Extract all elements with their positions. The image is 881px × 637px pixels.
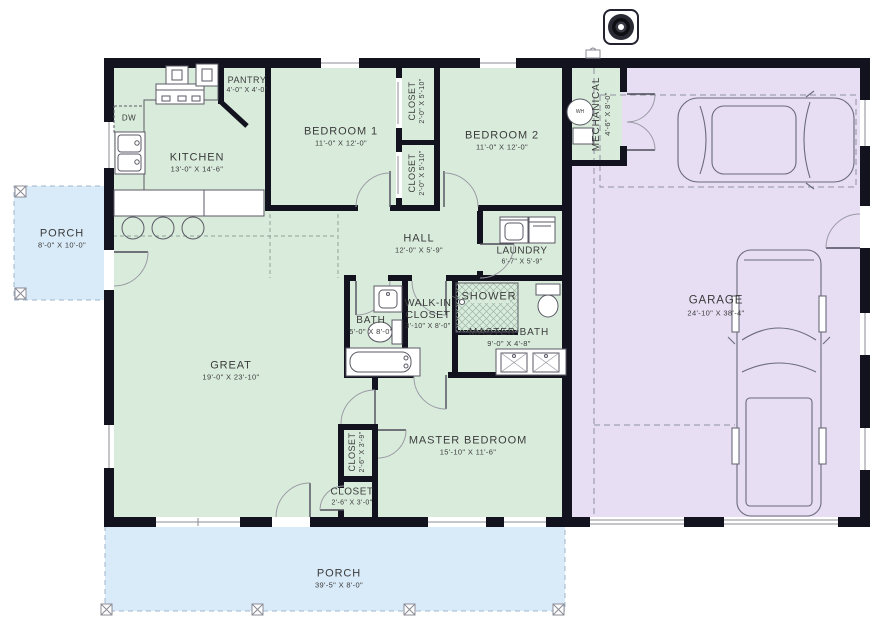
- room-label-bedroom1: BEDROOM 1 11'-0" X 12'-0": [304, 126, 378, 149]
- room-label-pantry: PANTRY 4'-0" X 4'-0": [227, 75, 268, 95]
- room-dims: 13'-0" X 14'-6": [170, 166, 225, 175]
- room-label-hall: HALL 12'-0" X 5'-9": [395, 233, 443, 256]
- room-name: MASTER BATH: [469, 327, 549, 339]
- room-name: CLOSET: [347, 432, 358, 473]
- room-dims: 24'-10" X 38'-4": [687, 309, 744, 318]
- water-heater-label: WH: [576, 109, 584, 115]
- room-label-master-bedroom: MASTER BEDROOM 15'-10" X 11'-6": [409, 435, 527, 458]
- room-label-master-bath: MASTER BATH 9'-0" X 4'-8": [469, 327, 549, 349]
- room-name: MASTER BEDROOM: [409, 435, 527, 448]
- room-name: MECHANICAL: [591, 77, 603, 152]
- room-dims: 11'-0" X 12'-0": [304, 140, 378, 149]
- room-name: BATH: [349, 315, 393, 327]
- room-dims: 39'-5" X 8'-0": [315, 582, 363, 591]
- room-label-closet-entry: CLOSET 2'-6" X 3'-0": [330, 486, 373, 507]
- room-name: BEDROOM 2: [465, 130, 539, 143]
- room-label-bedroom2: BEDROOM 2 11'-0" X 12'-0": [465, 130, 539, 153]
- label-layer: KITCHEN 13'-0" X 14'-6" PANTRY 4'-0" X 4…: [0, 0, 881, 637]
- room-name: CLOSET: [330, 486, 373, 498]
- room-dims: 12'-0" X 5'-9": [395, 247, 443, 256]
- room-dims: 2'-0" X 5'-10": [419, 150, 427, 195]
- room-label-closet-hall: CLOSET 2'-6" X 3'-9": [347, 432, 367, 473]
- room-label-porch-side: PORCH 8'-0" X 10'-0": [38, 228, 86, 251]
- room-dims: 3'-10" X 8'-0": [394, 323, 462, 331]
- room-name: PORCH: [315, 568, 363, 581]
- room-label-mechanical: MECHANICAL 4'-6" X 8'-0": [591, 77, 613, 152]
- room-name: PANTRY: [227, 75, 268, 86]
- room-dims: 19'-0" X 23'-10": [202, 374, 259, 383]
- dishwasher-label: DW: [122, 114, 136, 123]
- room-label-porch-rear: PORCH 39'-5" X 8'-0": [315, 568, 363, 591]
- room-name: CLOSET: [407, 150, 418, 195]
- room-dims: 9'-0" X 4'-8": [469, 340, 549, 349]
- room-label-shower: SHOWER: [462, 291, 517, 304]
- room-dims: 2'-6" X 3'-0": [330, 499, 373, 507]
- room-label-walk-in-closet: WALK-IN CLOSET 3'-10" X 8'-0": [394, 297, 462, 331]
- room-label-garage: GARAGE 24'-10" X 38'-4": [687, 294, 744, 317]
- room-label-bath: BATH 5'-0" X 8'-0": [349, 315, 393, 337]
- room-label-closet-bed1: CLOSET 2'-0" X 5'-10": [407, 78, 427, 123]
- room-name: GREAT: [202, 360, 259, 373]
- room-dims: 2'-0" X 5'-10": [419, 78, 427, 123]
- room-dims: 6'-7" X 5'-9": [496, 258, 547, 266]
- room-name: GARAGE: [687, 294, 744, 308]
- room-name: CLOSET: [407, 78, 418, 123]
- room-name: HALL: [395, 233, 443, 246]
- room-dims: 5'-0" X 8'-0": [349, 328, 393, 337]
- room-dims: 4'-0" X 4'-0": [227, 87, 268, 95]
- room-label-kitchen: KITCHEN 13'-0" X 14'-6": [170, 152, 225, 175]
- room-name: PORCH: [38, 228, 86, 241]
- floor-plan: KITCHEN 13'-0" X 14'-6" PANTRY 4'-0" X 4…: [0, 0, 881, 637]
- room-dims: 4'-6" X 8'-0": [604, 77, 613, 152]
- room-dims: 2'-6" X 3'-9": [359, 432, 367, 473]
- room-name: SHOWER: [462, 291, 517, 304]
- room-name: BEDROOM 1: [304, 126, 378, 139]
- room-label-closet-bed2: CLOSET 2'-0" X 5'-10": [407, 150, 427, 195]
- room-label-laundry: LAUNDRY 6'-7" X 5'-9": [496, 245, 547, 266]
- room-name: WALK-IN CLOSET: [394, 297, 462, 322]
- room-dims: 8'-0" X 10'-0": [38, 242, 86, 251]
- room-name: LAUNDRY: [496, 245, 547, 257]
- room-dims: 15'-10" X 11'-6": [409, 449, 527, 458]
- room-label-great: GREAT 19'-0" X 23'-10": [202, 360, 259, 383]
- room-name: KITCHEN: [170, 152, 225, 165]
- room-dims: 11'-0" X 12'-0": [465, 144, 539, 153]
